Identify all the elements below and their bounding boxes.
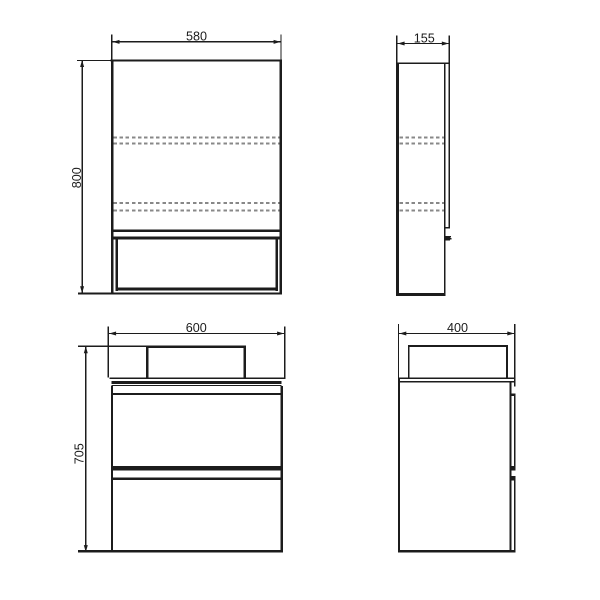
svg-text:580: 580: [186, 30, 207, 44]
svg-text:400: 400: [447, 321, 468, 335]
svg-text:600: 600: [186, 321, 207, 335]
svg-text:155: 155: [414, 31, 435, 45]
svg-text:800: 800: [70, 167, 84, 188]
svg-text:705: 705: [72, 443, 86, 464]
